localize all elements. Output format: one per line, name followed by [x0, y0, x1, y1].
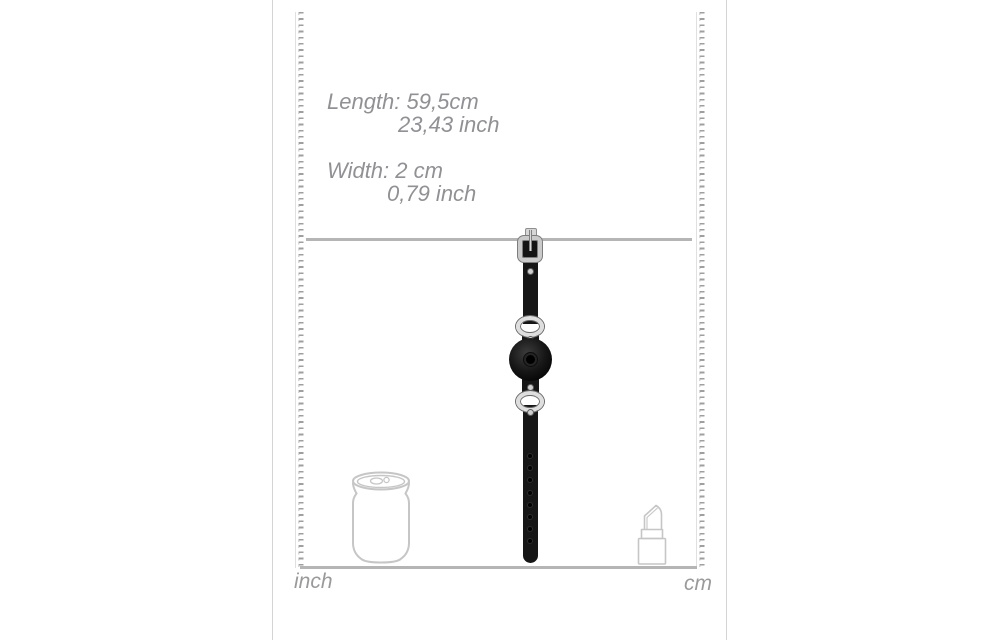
strap-upper	[523, 254, 538, 324]
content-left-edge-line	[272, 0, 273, 640]
inch-unit-label: inch	[294, 570, 333, 594]
strap-hole	[528, 478, 532, 482]
rivet	[527, 268, 534, 275]
rivet	[527, 409, 534, 416]
o-ring-top	[516, 316, 544, 337]
strap-hole	[528, 491, 532, 495]
content-right-edge-line	[726, 0, 727, 640]
length-inch-label: 23,43 inch	[398, 112, 500, 138]
strap-hole	[528, 527, 532, 531]
strap-hole	[528, 503, 532, 507]
lipstick-icon	[636, 503, 668, 566]
soda-can-icon	[349, 470, 413, 566]
product-dimension-sheet: Length: 59,5cm 23,43 inch Width: 2 cm 0,…	[0, 0, 1000, 640]
strap-hole	[528, 515, 532, 519]
strap-hole	[528, 466, 532, 470]
cm-unit-label: cm	[684, 572, 712, 596]
inch-ruler	[295, 12, 304, 568]
baseline	[300, 566, 697, 569]
gag-ball-hole	[526, 355, 535, 364]
strap-hole	[528, 454, 532, 458]
width-inch-label: 0,79 inch	[387, 181, 476, 207]
buckle-prong	[529, 230, 532, 251]
rivet	[527, 384, 534, 391]
hanging-line	[306, 238, 692, 241]
strap-hole	[528, 539, 532, 543]
cm-ruler	[696, 12, 705, 568]
